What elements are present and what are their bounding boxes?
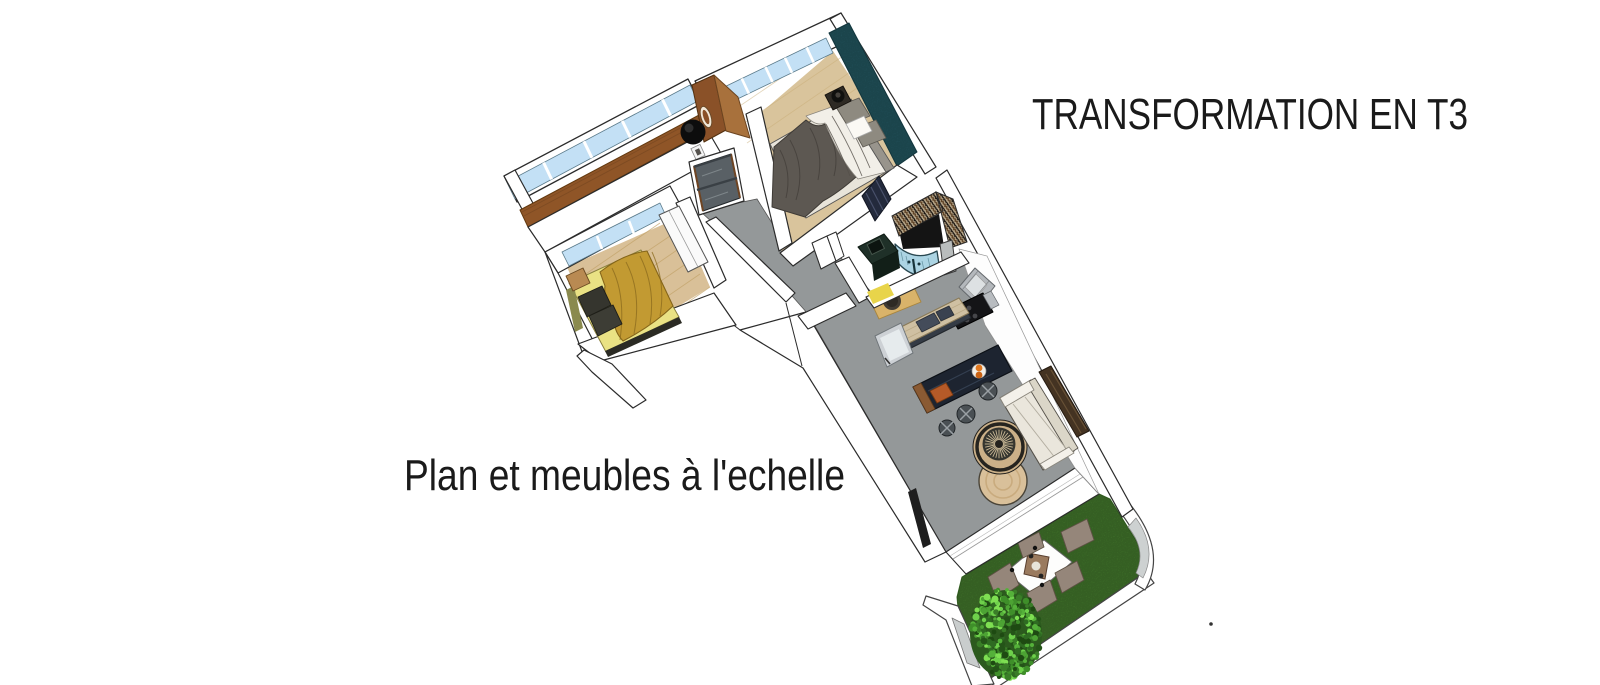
svg-text:Plan et meubles à l'echelle: Plan et meubles à l'echelle xyxy=(404,451,845,500)
svg-text:TRANSFORMATION EN T3: TRANSFORMATION EN T3 xyxy=(1032,90,1468,139)
